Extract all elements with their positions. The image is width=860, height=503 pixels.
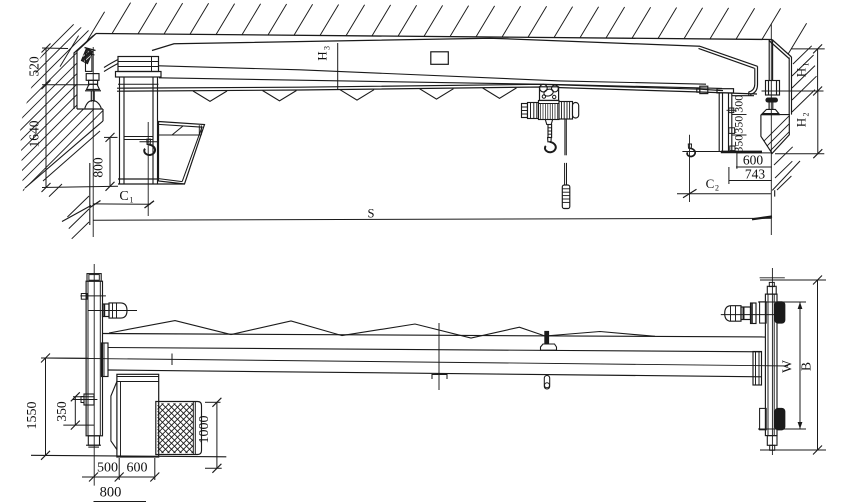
svg-text:C: C	[706, 176, 715, 191]
svg-text:C: C	[119, 189, 128, 204]
svg-text:1550: 1550	[25, 402, 40, 430]
svg-text:300: 300	[732, 95, 746, 113]
svg-text:W: W	[780, 360, 795, 373]
svg-text:S: S	[368, 207, 375, 221]
svg-text:B: B	[799, 362, 814, 371]
svg-text:500: 500	[97, 461, 118, 476]
svg-text:1: 1	[802, 63, 811, 67]
svg-text:2: 2	[802, 113, 811, 117]
svg-text:600: 600	[127, 461, 148, 476]
svg-text:800: 800	[100, 485, 122, 501]
svg-text:520: 520	[27, 56, 42, 77]
svg-text:1640: 1640	[27, 120, 42, 147]
svg-text:2: 2	[715, 184, 719, 193]
svg-text:1: 1	[130, 196, 134, 205]
svg-text:H: H	[794, 118, 809, 127]
svg-text:600: 600	[743, 153, 764, 168]
svg-text:350: 350	[732, 135, 746, 153]
svg-text:3: 3	[323, 46, 332, 50]
svg-text:800: 800	[91, 157, 106, 178]
svg-text:743: 743	[745, 167, 766, 182]
svg-text:1000: 1000	[197, 416, 212, 444]
svg-text:350: 350	[54, 401, 69, 422]
svg-text:350: 350	[732, 116, 746, 134]
svg-text:H: H	[315, 51, 330, 60]
svg-text:H: H	[794, 68, 809, 77]
